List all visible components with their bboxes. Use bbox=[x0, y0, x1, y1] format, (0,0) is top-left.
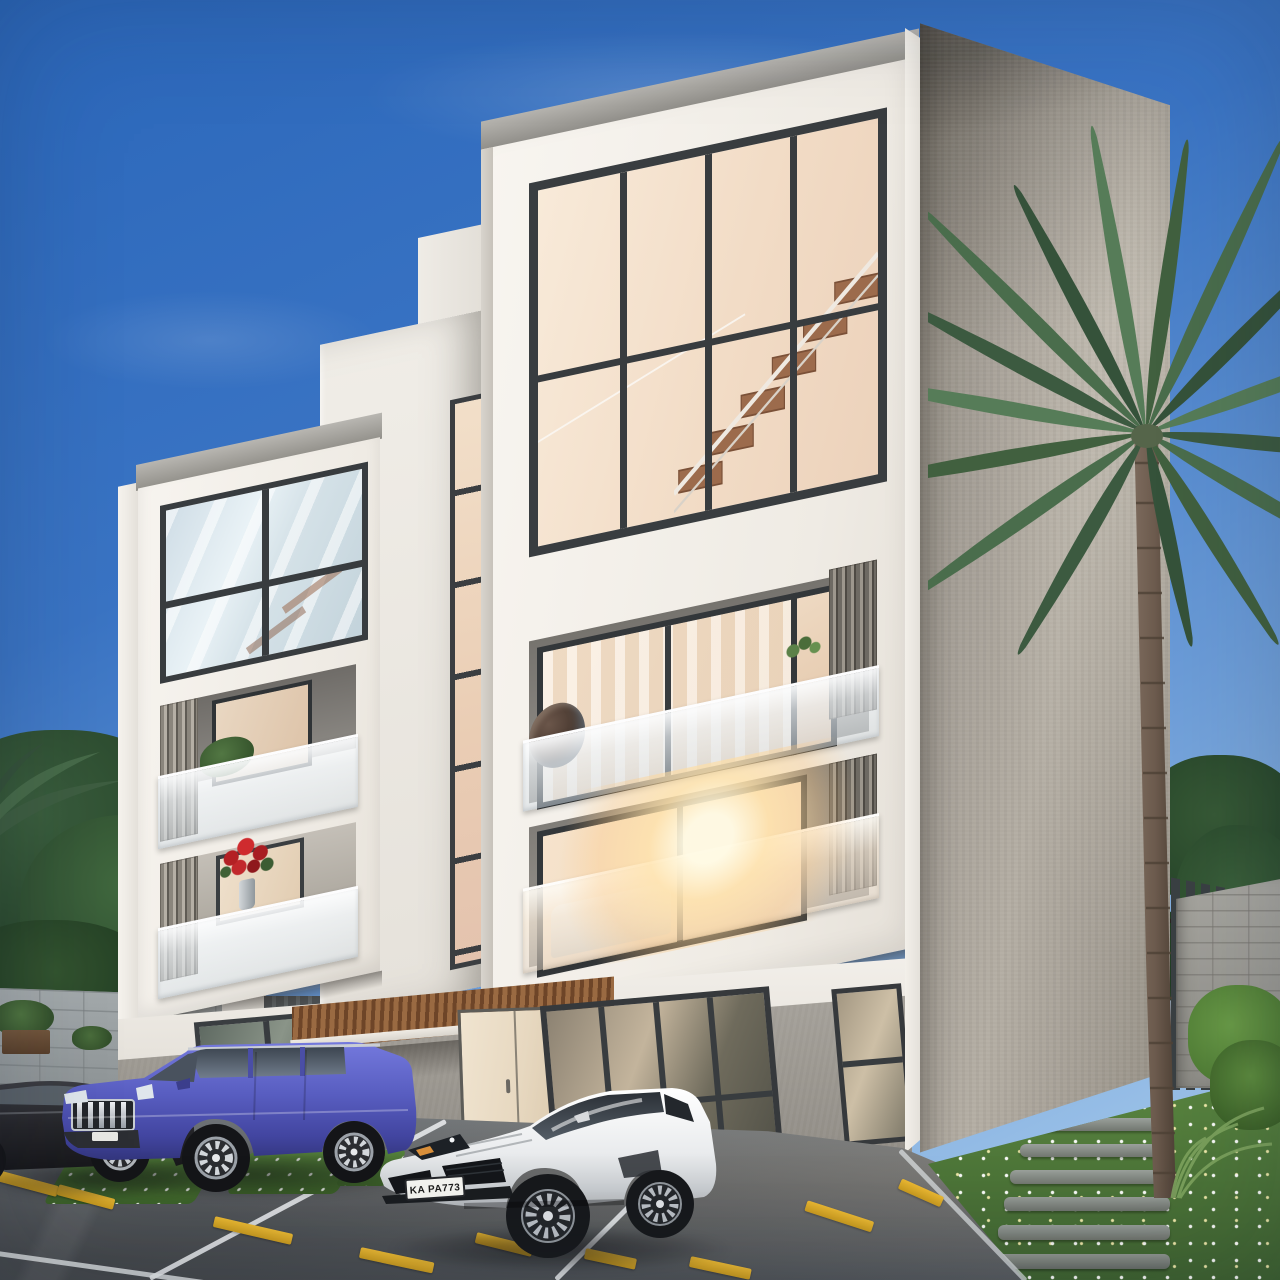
right-window-tower bbox=[481, 29, 919, 1042]
scene: KA PA773 bbox=[0, 0, 1280, 1280]
flower-vase bbox=[239, 878, 255, 911]
suv-plate bbox=[92, 1132, 118, 1141]
paver-step bbox=[992, 1254, 1170, 1269]
sports-car: KA PA773 bbox=[372, 1078, 724, 1276]
palm-tree bbox=[928, 58, 1280, 1208]
stair-reflection bbox=[246, 606, 306, 654]
palm-fronds bbox=[928, 124, 1280, 658]
suv-windows bbox=[190, 1047, 346, 1078]
left-window-tower bbox=[136, 413, 382, 1045]
ground-sprout bbox=[1172, 1108, 1272, 1198]
window-mullion bbox=[705, 154, 712, 511]
frame-return-edge bbox=[481, 147, 493, 1040]
palm-crown-base bbox=[1131, 424, 1163, 448]
window-mullion bbox=[790, 136, 797, 493]
window-mullion bbox=[843, 1056, 903, 1067]
ground-window bbox=[831, 983, 915, 1146]
suv-windshield bbox=[148, 1052, 198, 1082]
window-mullion bbox=[620, 172, 627, 529]
paver-step bbox=[998, 1225, 1170, 1240]
window-mullion bbox=[262, 489, 269, 656]
staircase-window bbox=[529, 107, 887, 557]
license-plate: KA PA773 bbox=[405, 1176, 464, 1200]
